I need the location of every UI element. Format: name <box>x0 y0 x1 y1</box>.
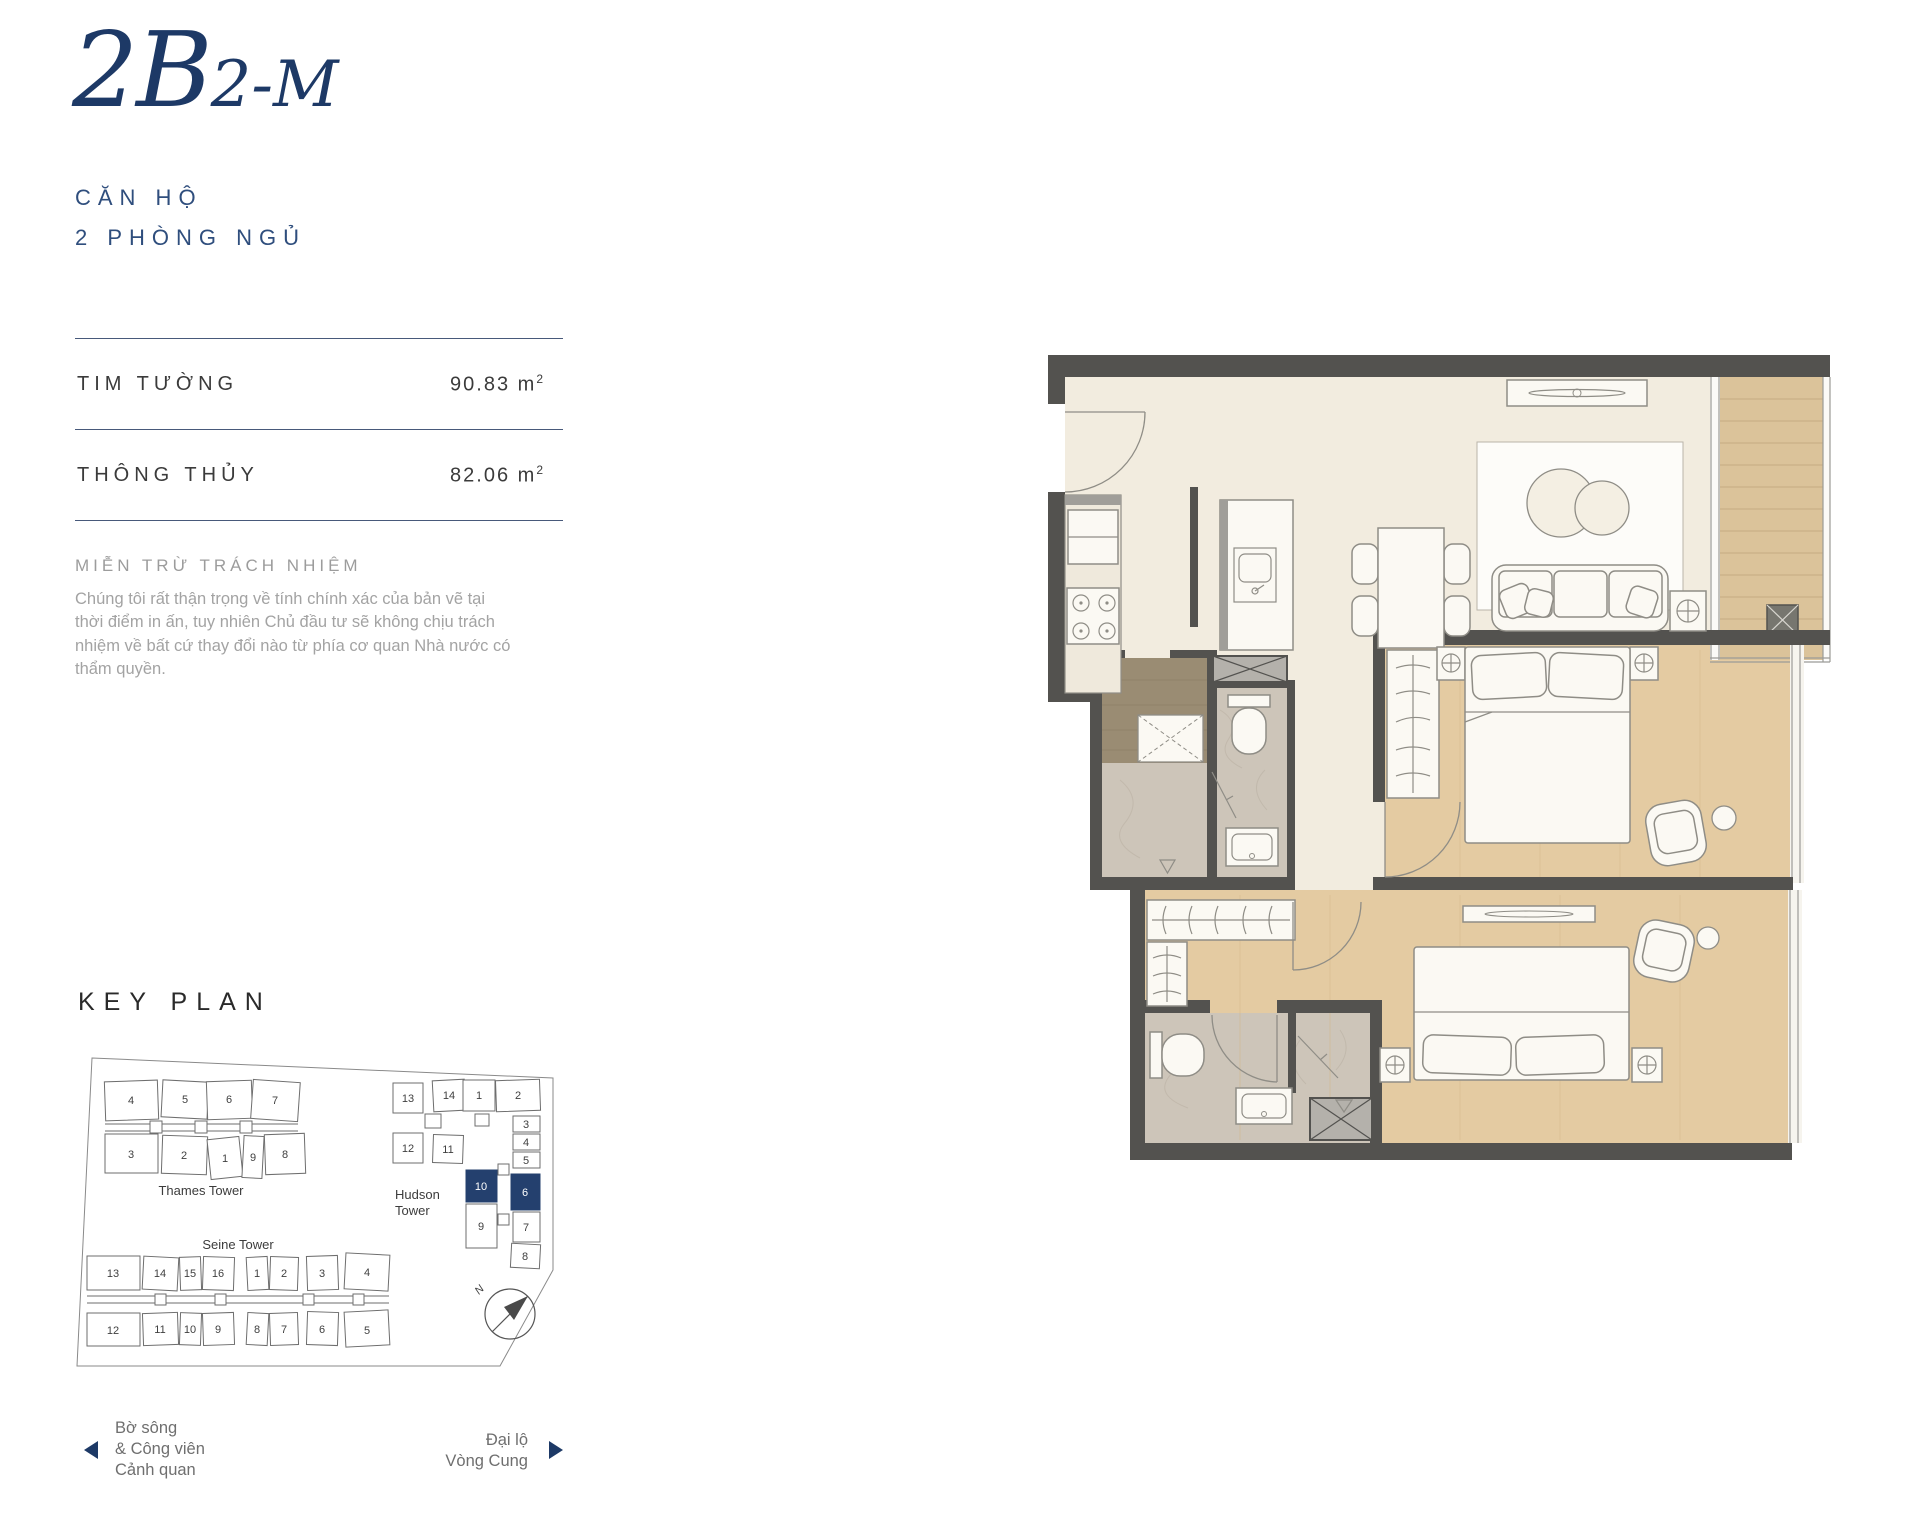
svg-text:16: 16 <box>212 1268 224 1280</box>
svg-text:10: 10 <box>184 1324 196 1336</box>
round-table-icon <box>1697 927 1719 949</box>
bed-icon <box>1414 947 1629 1080</box>
svg-text:7: 7 <box>523 1222 529 1234</box>
svg-text:12: 12 <box>402 1143 414 1155</box>
fridge-icon <box>1068 510 1118 564</box>
dining-chair-icon <box>1352 596 1378 636</box>
keyplan-unit-highlighted: 10 <box>475 1181 487 1193</box>
svg-text:7: 7 <box>272 1095 278 1107</box>
apartment-subtitle: CĂN HỘ 2 PHÒNG NGỦ <box>75 178 306 258</box>
svg-text:2: 2 <box>515 1090 521 1102</box>
toilet-icon <box>1150 1032 1204 1078</box>
disclaimer-heading: MIỄN TRỪ TRÁCH NHIỆM <box>75 556 515 576</box>
svg-text:11: 11 <box>154 1324 165 1336</box>
svg-text:8: 8 <box>522 1251 528 1263</box>
svg-text:13: 13 <box>107 1268 119 1280</box>
tv-console-icon <box>1507 380 1647 406</box>
area-spec-table: TIM TƯỜNG 90.83 m2 THÔNG THỦY 82.06 m2 <box>75 338 563 521</box>
washer-icon <box>1138 715 1203 762</box>
keyplan-title: KEY PLAN <box>78 988 272 1017</box>
kitchen-island <box>1220 500 1293 650</box>
divider <box>75 520 563 521</box>
hudson-tower: 13 14 12 11 1 2 3 4 5 6 7 8 10 9 Hudson … <box>393 1079 541 1269</box>
seine-tower: Seine Tower 13 14 15 16 1 2 3 4 12 11 10… <box>87 1237 390 1347</box>
tv-console-icon <box>1463 906 1595 922</box>
armchair-icon <box>1643 798 1709 869</box>
spec-label: THÔNG THỦY <box>77 464 259 487</box>
seine-tower-label: Seine Tower <box>202 1237 274 1252</box>
spec-value: 90.83 m2 <box>450 372 545 397</box>
floor-hallway <box>1293 630 1385 890</box>
svg-text:4: 4 <box>523 1137 529 1149</box>
unit-code-main: 2B <box>72 9 211 131</box>
svg-text:2: 2 <box>181 1150 187 1162</box>
spec-value: 82.06 m2 <box>450 463 545 488</box>
svg-text:7: 7 <box>281 1324 287 1336</box>
svg-text:15: 15 <box>184 1268 196 1280</box>
balcony-railing <box>1823 377 1830 660</box>
direction-label-boulevard: Đại lộ Vòng Cung <box>390 1430 528 1472</box>
svg-text:4: 4 <box>364 1267 370 1279</box>
washbasin-icon <box>1236 1088 1292 1124</box>
svg-text:6: 6 <box>226 1094 232 1106</box>
spec-row-net: THÔNG THỦY 82.06 m2 <box>75 429 563 520</box>
compass-icon: N <box>473 1283 535 1339</box>
nightstand-icon <box>1632 1048 1662 1082</box>
svg-text:13: 13 <box>402 1093 414 1105</box>
spec-label: TIM TƯỜNG <box>77 373 238 396</box>
nightstand-icon <box>1630 647 1658 680</box>
svg-text:3: 3 <box>319 1268 325 1280</box>
spec-row-gross: TIM TƯỜNG 90.83 m2 <box>75 338 563 429</box>
hudson-tower-label: Hudson <box>395 1187 440 1202</box>
svg-text:9: 9 <box>215 1324 221 1336</box>
keyplan-unit-highlighted: 6 <box>522 1187 528 1199</box>
arrow-right-icon <box>549 1441 563 1459</box>
svg-text:8: 8 <box>282 1149 288 1161</box>
keyplan-map: 4 5 6 7 3 2 1 9 8 Thames Tower 13 14 12 … <box>55 1048 555 1373</box>
side-table-icon <box>1670 591 1706 631</box>
nightstand-icon <box>1437 647 1465 680</box>
unit-code-sub: 2-M <box>211 48 339 122</box>
thames-tower: 4 5 6 7 3 2 1 9 8 Thames Tower <box>104 1079 305 1198</box>
balcony <box>1710 377 1830 662</box>
bedroom-windows <box>1788 645 1804 1143</box>
compass-n-label: N <box>473 1283 487 1297</box>
stove-icon <box>1067 588 1119 644</box>
svg-text:9: 9 <box>250 1152 256 1164</box>
toilet-icon <box>1228 695 1270 754</box>
disclaimer-body: Chúng tôi rất thận trọng về tính chính x… <box>75 588 515 682</box>
svg-text:5: 5 <box>523 1155 529 1167</box>
floor-shower-1 <box>1100 763 1210 877</box>
svg-text:5: 5 <box>182 1094 188 1106</box>
svg-text:14: 14 <box>443 1090 455 1102</box>
svg-text:1: 1 <box>222 1153 228 1165</box>
subtitle-line-2: 2 PHÒNG NGỦ <box>75 218 306 258</box>
svg-text:14: 14 <box>154 1268 166 1280</box>
dining-chair-icon <box>1444 544 1470 584</box>
svg-text:12: 12 <box>107 1325 119 1337</box>
svg-text:1: 1 <box>254 1268 260 1280</box>
subtitle-line-1: CĂN HỘ <box>75 178 306 218</box>
round-table-icon <box>1712 806 1736 830</box>
svg-text:4: 4 <box>128 1095 134 1107</box>
svg-text:9: 9 <box>478 1221 484 1233</box>
dining-table-icon <box>1378 528 1444 648</box>
floor-plan <box>1040 350 1840 1170</box>
coffee-table-icon <box>1575 481 1629 535</box>
svg-text:3: 3 <box>128 1149 134 1161</box>
svg-text:Tower: Tower <box>395 1203 430 1218</box>
svg-text:8: 8 <box>254 1324 260 1336</box>
svg-text:2: 2 <box>281 1268 287 1280</box>
wardrobe-icon <box>1387 650 1439 798</box>
washbasin-icon <box>1226 828 1278 866</box>
svg-text:5: 5 <box>364 1325 370 1337</box>
svg-text:6: 6 <box>319 1324 325 1336</box>
svg-text:3: 3 <box>523 1119 529 1131</box>
svg-text:11: 11 <box>442 1144 453 1156</box>
bed-icon <box>1465 647 1630 843</box>
arrow-left-icon <box>84 1441 98 1459</box>
svg-text:1: 1 <box>476 1090 482 1102</box>
sofa-icon <box>1492 565 1668 631</box>
page-title: 2B2-M <box>72 18 338 122</box>
nightstand-icon <box>1380 1048 1410 1082</box>
dining-chair-icon <box>1352 544 1378 584</box>
direction-label-riverside: Bờ sông & Công viên Cảnh quan <box>115 1418 205 1481</box>
disclaimer-block: MIỄN TRỪ TRÁCH NHIỆM Chúng tôi rất thận … <box>75 556 515 682</box>
thames-tower-label: Thames Tower <box>158 1183 244 1198</box>
dining-chair-icon <box>1444 596 1470 636</box>
